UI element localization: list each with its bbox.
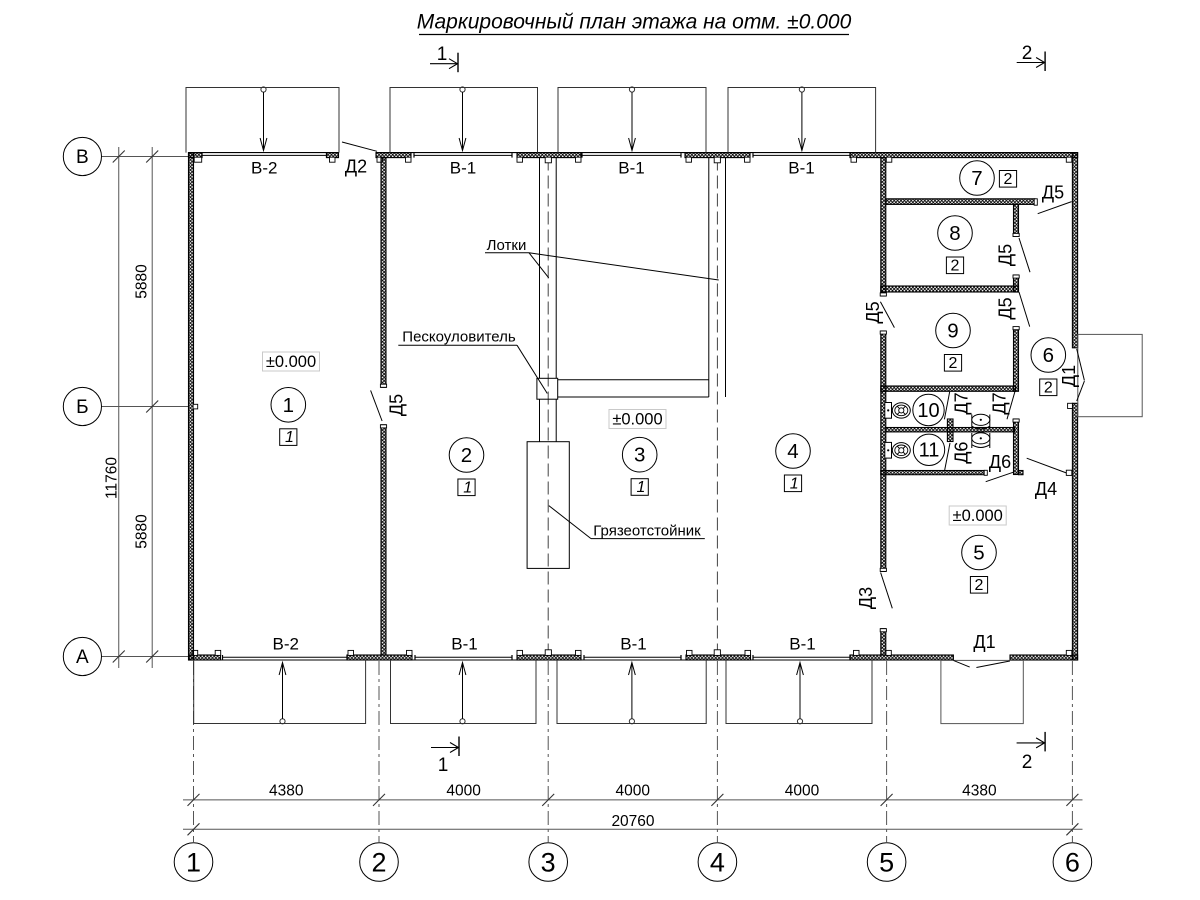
svg-text:Грязеотстойник: Грязеотстойник — [593, 522, 701, 539]
svg-text:6: 6 — [1065, 848, 1080, 878]
svg-text:5880: 5880 — [134, 514, 151, 549]
svg-text:2: 2 — [949, 355, 958, 372]
svg-text:Б: Б — [76, 397, 88, 418]
svg-text:В-1: В-1 — [450, 159, 476, 178]
svg-text:4380: 4380 — [962, 783, 997, 800]
svg-text:4: 4 — [710, 848, 725, 878]
svg-text:В-1: В-1 — [618, 159, 644, 178]
svg-text:Лотки: Лотки — [487, 237, 527, 254]
svg-text:20760: 20760 — [611, 813, 654, 830]
svg-text:В-1: В-1 — [451, 635, 477, 654]
svg-text:Д5: Д5 — [1042, 182, 1064, 202]
svg-text:В-1: В-1 — [788, 159, 814, 178]
svg-text:1: 1 — [790, 475, 799, 492]
svg-text:Д4: Д4 — [1035, 479, 1057, 499]
svg-text:4000: 4000 — [785, 783, 820, 800]
svg-text:В-2: В-2 — [273, 635, 299, 654]
svg-text:Д2: Д2 — [345, 157, 367, 177]
svg-text:2: 2 — [371, 848, 386, 878]
svg-text:7: 7 — [971, 167, 982, 190]
svg-text:Д7: Д7 — [990, 392, 1010, 414]
svg-text:10: 10 — [917, 400, 939, 422]
svg-text:1: 1 — [438, 755, 449, 776]
svg-text:А: А — [76, 647, 89, 668]
svg-text:2: 2 — [1022, 43, 1033, 64]
svg-text:±0.000: ±0.000 — [612, 411, 662, 429]
svg-text:2: 2 — [1004, 171, 1013, 188]
svg-text:Д1: Д1 — [973, 632, 995, 652]
svg-text:Пескоуловитель: Пескоуловитель — [402, 329, 516, 346]
svg-text:4: 4 — [787, 440, 798, 463]
svg-text:1: 1 — [636, 479, 645, 496]
svg-text:11: 11 — [919, 440, 940, 462]
svg-text:Д5: Д5 — [996, 297, 1016, 319]
svg-text:6: 6 — [1043, 344, 1054, 367]
svg-text:В-1: В-1 — [620, 635, 646, 654]
svg-text:2: 2 — [461, 444, 472, 467]
svg-text:Д6: Д6 — [989, 452, 1011, 472]
svg-text:Д6: Д6 — [952, 442, 972, 464]
svg-text:2: 2 — [1044, 379, 1053, 396]
svg-text:1: 1 — [437, 44, 448, 65]
svg-text:11760: 11760 — [104, 457, 121, 499]
svg-text:Д1: Д1 — [1059, 365, 1079, 387]
svg-text:4000: 4000 — [616, 783, 651, 800]
svg-text:Д5: Д5 — [863, 301, 883, 323]
svg-text:8: 8 — [949, 222, 960, 245]
svg-text:5880: 5880 — [134, 264, 151, 299]
svg-text:3: 3 — [541, 848, 556, 878]
svg-text:В-1: В-1 — [789, 635, 815, 654]
svg-text:2: 2 — [975, 577, 984, 594]
svg-text:1: 1 — [283, 394, 294, 417]
svg-text:2: 2 — [1022, 752, 1033, 773]
svg-text:4380: 4380 — [269, 783, 304, 800]
svg-text:2: 2 — [951, 257, 960, 274]
svg-text:±0.000: ±0.000 — [266, 353, 316, 371]
svg-text:В: В — [76, 147, 89, 168]
svg-text:В-2: В-2 — [251, 159, 277, 178]
svg-text:5: 5 — [973, 542, 984, 565]
svg-text:5: 5 — [879, 848, 894, 878]
svg-text:9: 9 — [947, 320, 958, 343]
svg-text:Д5: Д5 — [387, 394, 407, 416]
svg-text:Маркировочный план этажа на от: Маркировочный план этажа на отм. ±0.000 — [417, 11, 852, 34]
svg-text:1: 1 — [186, 848, 201, 878]
svg-text:Д3: Д3 — [856, 587, 876, 609]
svg-text:Д7: Д7 — [952, 392, 972, 414]
svg-text:±0.000: ±0.000 — [953, 507, 1003, 525]
svg-text:Д5: Д5 — [996, 244, 1016, 266]
svg-text:1: 1 — [285, 429, 294, 446]
svg-text:4000: 4000 — [446, 783, 481, 800]
svg-text:1: 1 — [463, 479, 472, 496]
svg-text:3: 3 — [634, 444, 645, 467]
